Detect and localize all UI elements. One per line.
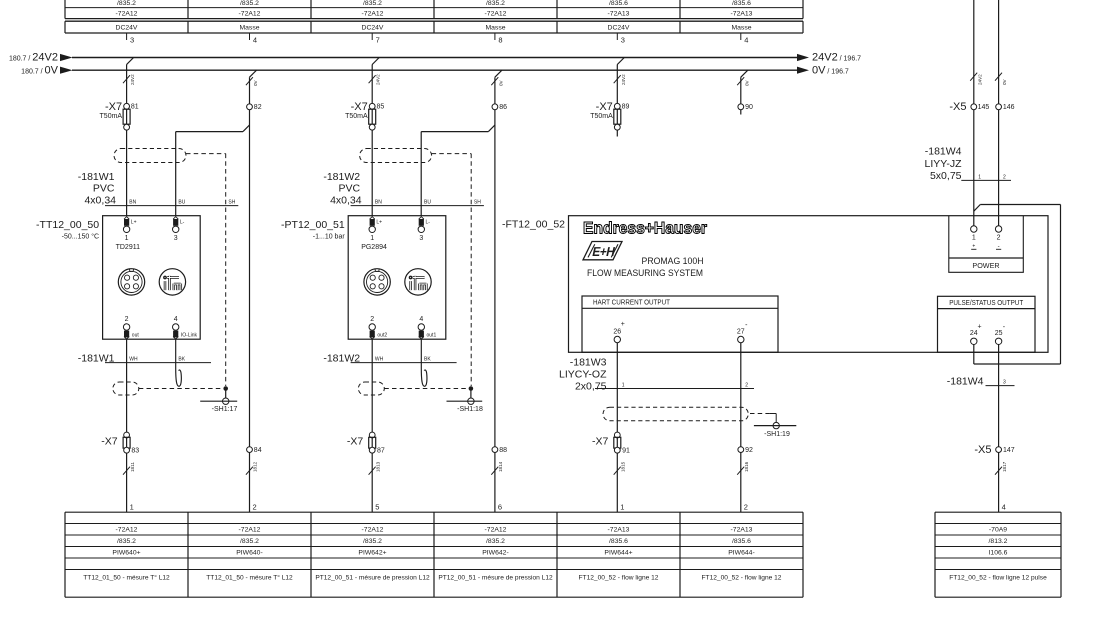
svg-text:/835.6: /835.6 bbox=[732, 0, 751, 7]
svg-text:TT12_01_50 - mésure T° L12: TT12_01_50 - mésure T° L12 bbox=[206, 574, 293, 582]
svg-text:PIW640-: PIW640- bbox=[236, 550, 262, 557]
svg-text:-X7: -X7 bbox=[105, 101, 122, 113]
svg-text:POWER: POWER bbox=[972, 261, 999, 270]
svg-text:1: 1 bbox=[370, 235, 374, 242]
svg-text:PIW640+: PIW640+ bbox=[112, 550, 140, 557]
svg-text:1: 1 bbox=[620, 503, 624, 512]
svg-text:Endress+Hauser: Endress+Hauser bbox=[583, 220, 708, 238]
svg-text:BU: BU bbox=[178, 199, 185, 205]
svg-text:1811: 1811 bbox=[130, 462, 135, 472]
svg-text:87: 87 bbox=[377, 448, 385, 455]
svg-text:/835.6: /835.6 bbox=[609, 0, 628, 7]
svg-text:-181W1: -181W1 bbox=[78, 171, 115, 183]
svg-text:1: 1 bbox=[622, 383, 625, 389]
svg-text:/813.2: /813.2 bbox=[989, 538, 1008, 545]
svg-text:PROMAG 100H: PROMAG 100H bbox=[642, 256, 704, 267]
svg-text:-50...150 °C: -50...150 °C bbox=[62, 233, 99, 241]
svg-text:3: 3 bbox=[419, 235, 423, 242]
svg-text:-72A12: -72A12 bbox=[362, 527, 384, 534]
svg-text:-X5: -X5 bbox=[974, 444, 991, 456]
svg-text:1813: 1813 bbox=[375, 461, 380, 472]
svg-text:FT12_00_52 - flow ligne 12 pul: FT12_00_52 - flow ligne 12 pulse bbox=[949, 575, 1047, 582]
svg-text:84: 84 bbox=[254, 447, 262, 454]
svg-text:FT12_00_52 - flow ligne 12: FT12_00_52 - flow ligne 12 bbox=[579, 575, 659, 582]
svg-text:-72A13: -72A13 bbox=[731, 527, 753, 534]
svg-text:Masse: Masse bbox=[731, 24, 751, 31]
svg-text:PT12_00_51 - mésure de pressio: PT12_00_51 - mésure de pression L12 bbox=[315, 575, 430, 582]
svg-text:/835.2: /835.2 bbox=[240, 0, 259, 7]
svg-text:T50mA: T50mA bbox=[345, 113, 368, 120]
svg-text:-72A13: -72A13 bbox=[608, 10, 630, 17]
svg-text:-181W3: -181W3 bbox=[570, 357, 607, 369]
svg-text:L+: L+ bbox=[376, 220, 382, 226]
svg-text:85: 85 bbox=[377, 104, 385, 111]
svg-text:/835.6: /835.6 bbox=[732, 538, 751, 545]
svg-text:Masse: Masse bbox=[485, 24, 505, 31]
svg-text:PIW644-: PIW644- bbox=[728, 550, 754, 557]
svg-text:DC24V: DC24V bbox=[608, 24, 630, 31]
svg-text:Masse: Masse bbox=[239, 24, 259, 31]
svg-text:92: 92 bbox=[745, 447, 753, 454]
svg-text:LIYCY-OZ: LIYCY-OZ bbox=[559, 369, 607, 381]
svg-text:IO-Link: IO-Link bbox=[181, 333, 198, 339]
svg-text:2x0,75: 2x0,75 bbox=[575, 381, 607, 393]
svg-text:DC24V: DC24V bbox=[116, 24, 138, 31]
svg-text:+: + bbox=[977, 323, 981, 330]
svg-text:-X7: -X7 bbox=[101, 436, 118, 448]
svg-text:4: 4 bbox=[419, 316, 423, 323]
svg-text:FT12_00_52 - flow ligne 12: FT12_00_52 - flow ligne 12 bbox=[702, 575, 782, 582]
svg-text:-SH1:17: -SH1:17 bbox=[212, 406, 238, 413]
svg-text:/835.2: /835.2 bbox=[117, 0, 136, 7]
svg-text:-72A12: -72A12 bbox=[485, 10, 507, 17]
svg-text:/835.2: /835.2 bbox=[363, 0, 382, 7]
svg-text:4x0,34: 4x0,34 bbox=[84, 194, 116, 206]
svg-text:2: 2 bbox=[125, 316, 129, 323]
svg-text:3: 3 bbox=[130, 36, 134, 45]
svg-text:out1: out1 bbox=[427, 333, 437, 339]
svg-text:-181W2: -181W2 bbox=[323, 171, 360, 183]
svg-text:24: 24 bbox=[970, 330, 978, 337]
svg-text:/835.2: /835.2 bbox=[363, 538, 382, 545]
svg-text:-72A12: -72A12 bbox=[362, 10, 384, 17]
svg-text:PG2894: PG2894 bbox=[361, 244, 387, 251]
svg-text:5: 5 bbox=[375, 503, 379, 512]
svg-text:83: 83 bbox=[131, 448, 139, 455]
svg-text:1814: 1814 bbox=[498, 461, 503, 472]
svg-text:-72A12: -72A12 bbox=[485, 527, 507, 534]
svg-text:1816: 1816 bbox=[744, 461, 749, 472]
svg-text:26: 26 bbox=[613, 328, 621, 335]
svg-text:PIW642-: PIW642- bbox=[482, 550, 508, 557]
svg-text:2: 2 bbox=[370, 316, 374, 323]
svg-text:BN: BN bbox=[375, 199, 382, 205]
svg-text:-72A13: -72A13 bbox=[731, 10, 753, 17]
svg-text:82: 82 bbox=[254, 104, 262, 111]
svg-text:PIW644+: PIW644+ bbox=[604, 550, 632, 557]
svg-text:-SH1:19: -SH1:19 bbox=[764, 431, 790, 438]
svg-text:0V: 0V bbox=[1002, 78, 1007, 85]
svg-text:6: 6 bbox=[498, 503, 502, 512]
svg-text:8: 8 bbox=[498, 36, 502, 45]
svg-text:-72A12: -72A12 bbox=[116, 527, 138, 534]
svg-text:DC24V: DC24V bbox=[362, 24, 384, 31]
svg-text:/835.2: /835.2 bbox=[486, 0, 505, 7]
svg-text:0V: 0V bbox=[253, 79, 258, 86]
svg-text:PIW642+: PIW642+ bbox=[358, 550, 386, 557]
svg-text:86: 86 bbox=[499, 104, 507, 111]
svg-text:PT12_00_51 - mésure de pressio: PT12_00_51 - mésure de pression L12 bbox=[438, 575, 553, 582]
svg-text:1: 1 bbox=[978, 175, 981, 181]
svg-text:/835.2: /835.2 bbox=[240, 538, 259, 545]
svg-text:L+: L+ bbox=[131, 220, 137, 226]
svg-text:-X7: -X7 bbox=[592, 436, 609, 448]
svg-text:4: 4 bbox=[744, 36, 748, 45]
svg-text:-70A9: -70A9 bbox=[989, 527, 1007, 534]
svg-text:BU: BU bbox=[424, 199, 431, 205]
svg-text:T50mA: T50mA bbox=[100, 113, 123, 120]
svg-text:-FT12_00_52: -FT12_00_52 bbox=[502, 219, 565, 231]
svg-text:2: 2 bbox=[1003, 175, 1006, 181]
svg-text:4: 4 bbox=[253, 36, 257, 45]
svg-text:HART CURRENT OUTPUT: HART CURRENT OUTPUT bbox=[593, 298, 671, 307]
svg-text:T50mA: T50mA bbox=[590, 113, 613, 120]
svg-text:+: + bbox=[621, 321, 625, 328]
svg-text:TT12_01_50 - mésure T° L12: TT12_01_50 - mésure T° L12 bbox=[83, 574, 170, 582]
svg-text:-X7: -X7 bbox=[351, 101, 368, 113]
svg-text:E+H: E+H bbox=[591, 244, 616, 259]
svg-text:0V: 0V bbox=[498, 79, 503, 86]
svg-text:out2: out2 bbox=[377, 333, 387, 339]
svg-text:2: 2 bbox=[997, 235, 1001, 242]
svg-text:-X7: -X7 bbox=[347, 436, 364, 448]
svg-text:-72A13: -72A13 bbox=[608, 527, 630, 534]
svg-text:BN: BN bbox=[129, 199, 136, 205]
svg-text:-PT12_00_51: -PT12_00_51 bbox=[281, 219, 345, 231]
svg-text:SH: SH bbox=[474, 199, 481, 205]
svg-text:-72A12: -72A12 bbox=[239, 527, 261, 534]
svg-text:-X7: -X7 bbox=[596, 101, 613, 113]
svg-text:out: out bbox=[132, 333, 140, 339]
svg-text:-TT12_00_50: -TT12_00_50 bbox=[36, 219, 99, 231]
svg-text:2: 2 bbox=[745, 383, 748, 389]
svg-text:-72A12: -72A12 bbox=[116, 10, 138, 17]
svg-text:89: 89 bbox=[622, 104, 630, 111]
svg-text:1817: 1817 bbox=[1002, 461, 1007, 472]
svg-text:FLOW MEASURING SYSTEM: FLOW MEASURING SYSTEM bbox=[587, 268, 703, 279]
svg-text:L-: L- bbox=[426, 220, 431, 226]
svg-text:I106.6: I106.6 bbox=[989, 550, 1008, 557]
svg-text:147: 147 bbox=[1003, 447, 1015, 454]
svg-text:0V: 0V bbox=[744, 79, 749, 86]
svg-text:/835.6: /835.6 bbox=[609, 538, 628, 545]
svg-text:4: 4 bbox=[1002, 503, 1006, 512]
svg-text:3: 3 bbox=[1003, 380, 1006, 386]
svg-text:4x0,34: 4x0,34 bbox=[330, 194, 362, 206]
svg-text:3: 3 bbox=[621, 36, 625, 45]
svg-text:LIYY-JZ: LIYY-JZ bbox=[925, 158, 963, 170]
svg-text:-72A12: -72A12 bbox=[239, 10, 261, 17]
svg-text:BK: BK bbox=[178, 356, 185, 362]
svg-text:2: 2 bbox=[744, 503, 748, 512]
svg-text:91: 91 bbox=[622, 448, 630, 455]
svg-text:81: 81 bbox=[131, 104, 139, 111]
svg-text:WH: WH bbox=[129, 356, 138, 362]
svg-text:-X5: -X5 bbox=[949, 101, 966, 113]
svg-text:90: 90 bbox=[745, 104, 753, 111]
svg-text:BK: BK bbox=[424, 356, 431, 362]
svg-text:PULSE/STATUS OUTPUT: PULSE/STATUS OUTPUT bbox=[949, 298, 1024, 307]
svg-text:+: + bbox=[972, 244, 975, 250]
svg-text:-181W4: -181W4 bbox=[947, 376, 984, 388]
svg-text:24V2: 24V2 bbox=[977, 74, 982, 85]
svg-text:L-: L- bbox=[180, 220, 185, 226]
svg-text:25: 25 bbox=[995, 330, 1003, 337]
svg-text:PVC: PVC bbox=[339, 183, 361, 195]
svg-text:145: 145 bbox=[978, 104, 990, 111]
svg-text:-181W4: -181W4 bbox=[925, 146, 962, 158]
svg-text:WH: WH bbox=[375, 356, 384, 362]
svg-text:2: 2 bbox=[253, 503, 257, 512]
svg-text:3: 3 bbox=[174, 235, 178, 242]
svg-text:1: 1 bbox=[125, 235, 129, 242]
svg-text:1: 1 bbox=[972, 235, 976, 242]
svg-text:1815: 1815 bbox=[621, 461, 626, 472]
svg-text:7: 7 bbox=[376, 36, 380, 45]
svg-text:4: 4 bbox=[174, 316, 178, 323]
svg-text:SH: SH bbox=[228, 199, 235, 205]
svg-text:1812: 1812 bbox=[253, 461, 258, 472]
svg-text:24V2: 24V2 bbox=[621, 74, 626, 85]
svg-text:24V2: 24V2 bbox=[376, 74, 381, 85]
svg-text:146: 146 bbox=[1003, 104, 1015, 111]
svg-text:27: 27 bbox=[737, 328, 745, 335]
svg-text:PVC: PVC bbox=[93, 183, 115, 195]
svg-text:1: 1 bbox=[130, 503, 134, 512]
svg-text:-SH1:18: -SH1:18 bbox=[457, 406, 483, 413]
svg-text:88: 88 bbox=[499, 447, 507, 454]
svg-text:24V2: 24V2 bbox=[130, 74, 135, 85]
svg-text:5x0,75: 5x0,75 bbox=[930, 170, 962, 182]
svg-text:TD2911: TD2911 bbox=[116, 244, 140, 251]
svg-text:/835.2: /835.2 bbox=[486, 538, 505, 545]
svg-text:-1...10 bar: -1...10 bar bbox=[313, 234, 346, 241]
svg-text:/835.2: /835.2 bbox=[117, 538, 136, 545]
